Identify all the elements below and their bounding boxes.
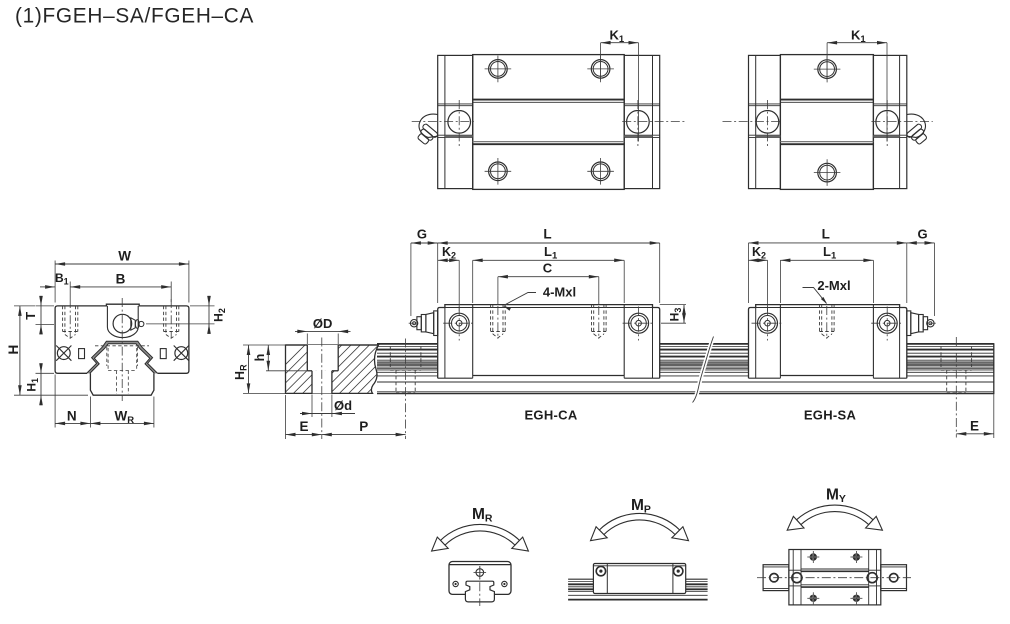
svg-text:G: G bbox=[417, 227, 427, 242]
svg-text:N: N bbox=[67, 408, 77, 423]
svg-text:h: h bbox=[253, 354, 267, 362]
svg-text:B: B bbox=[116, 271, 126, 286]
svg-text:4-Mxl: 4-Mxl bbox=[543, 285, 576, 300]
svg-text:ØD: ØD bbox=[313, 316, 333, 331]
svg-text:H: H bbox=[6, 345, 21, 355]
svg-text:(1)FGEH–SA/FGEH–CA: (1)FGEH–SA/FGEH–CA bbox=[15, 4, 254, 27]
svg-text:EGH-CA: EGH-CA bbox=[524, 408, 577, 423]
svg-text:E: E bbox=[970, 418, 979, 433]
svg-text:EGH-SA: EGH-SA bbox=[804, 408, 857, 423]
svg-text:T: T bbox=[23, 312, 38, 320]
svg-text:G: G bbox=[917, 227, 927, 242]
svg-text:L: L bbox=[822, 227, 830, 242]
svg-text:E: E bbox=[299, 419, 308, 434]
svg-text:2-Mxl: 2-Mxl bbox=[817, 278, 850, 293]
svg-text:C: C bbox=[543, 260, 553, 275]
svg-text:Ød: Ød bbox=[334, 398, 352, 413]
svg-text:W: W bbox=[118, 249, 131, 264]
svg-text:P: P bbox=[359, 419, 368, 434]
svg-text:L: L bbox=[543, 227, 551, 242]
